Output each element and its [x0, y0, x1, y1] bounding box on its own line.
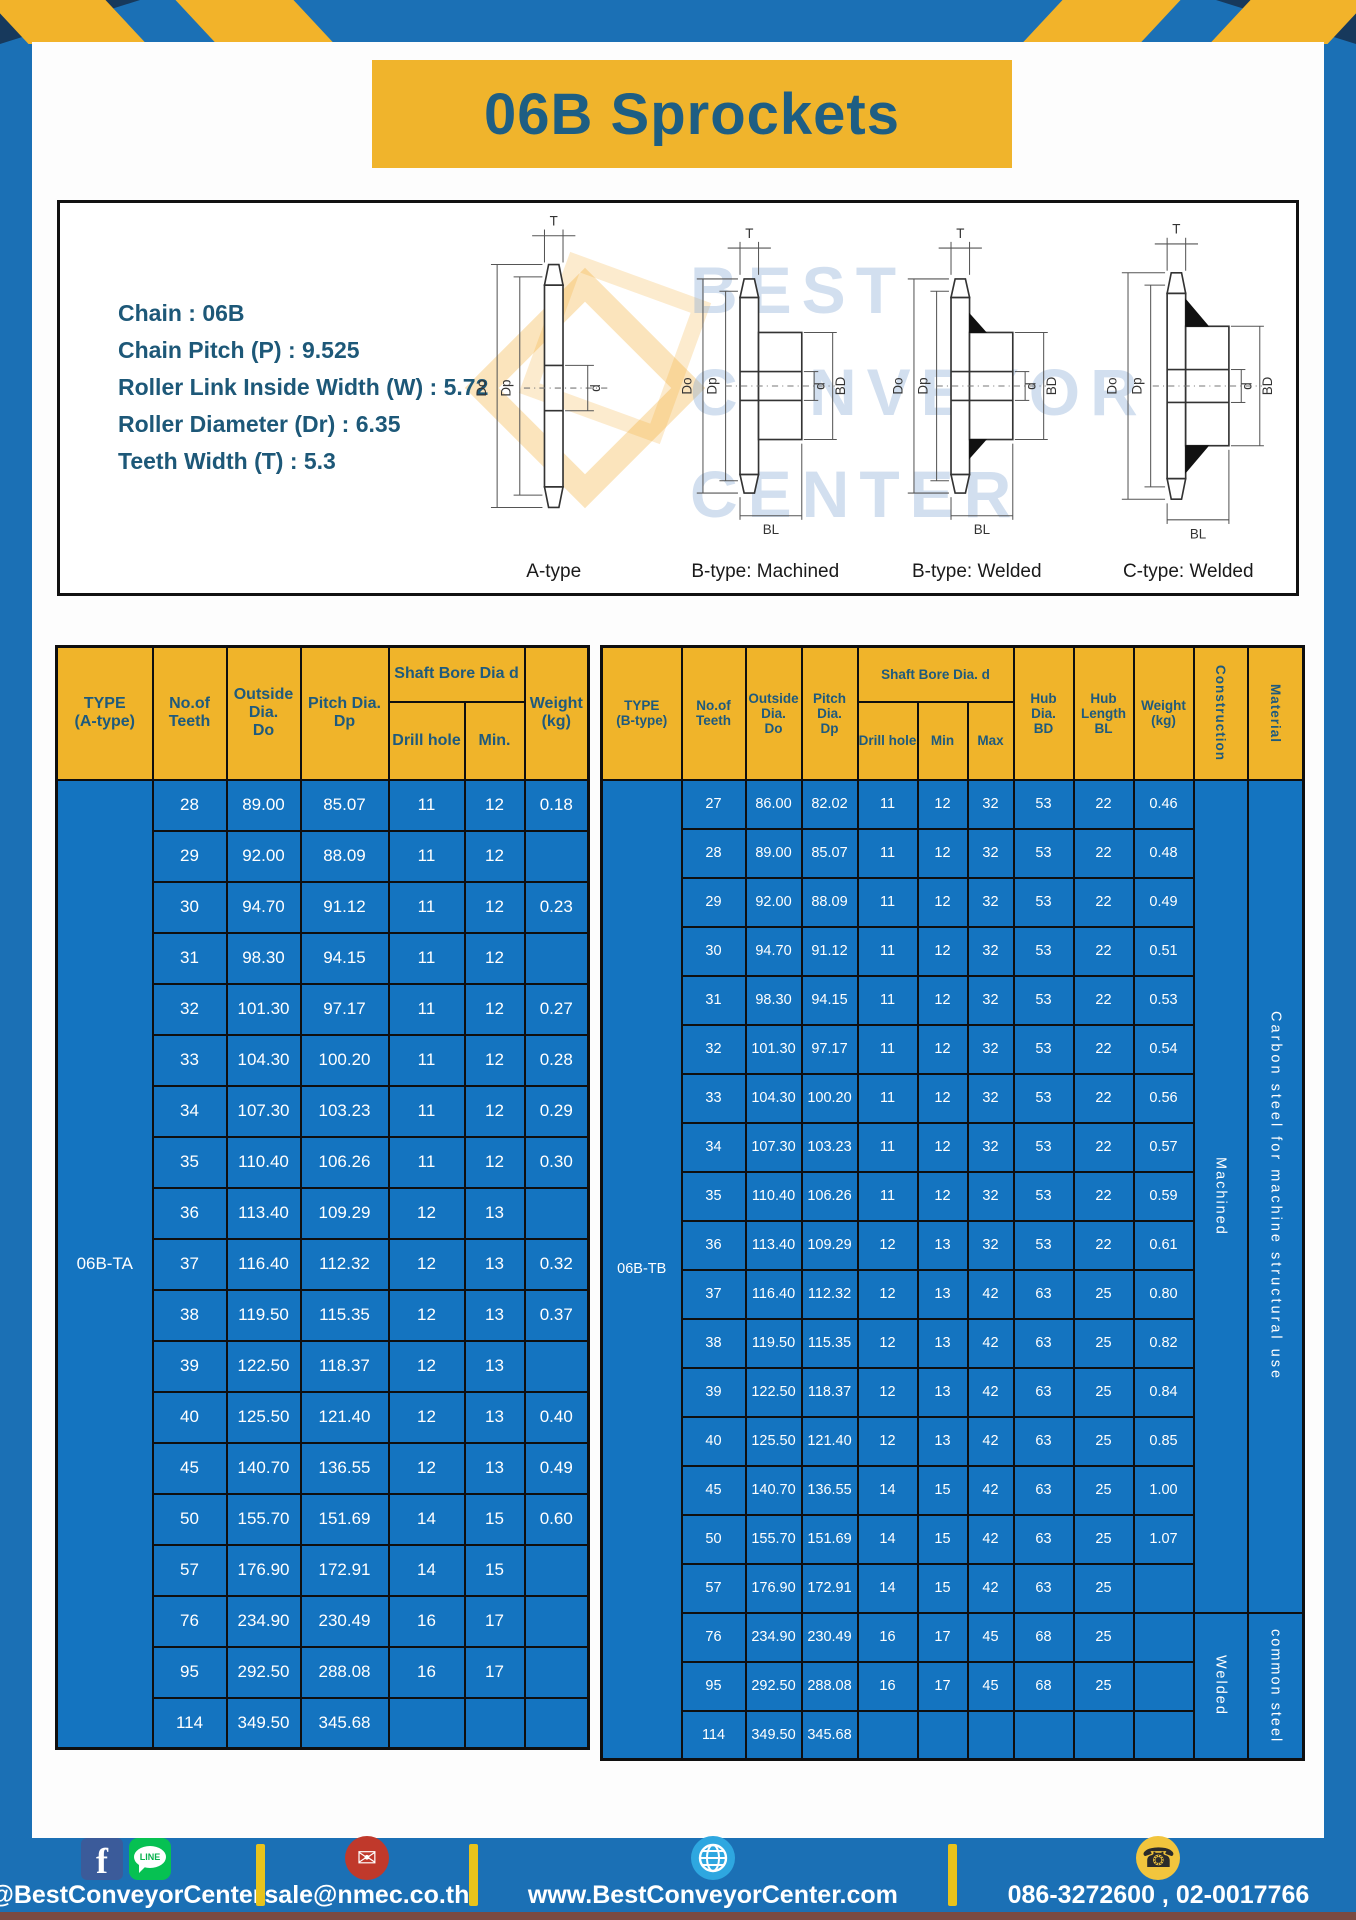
- dim-label-dp: Dp: [704, 377, 719, 394]
- col-header-shaft-bore: Shaft Bore Dia. d: [858, 647, 1014, 702]
- b-type-machined-cross-section: T Do Dp d BD BL: [660, 211, 872, 561]
- table-b-data-cell: 140.70: [746, 1466, 802, 1515]
- table-b-data-cell: 68: [1014, 1662, 1074, 1711]
- yellow-stripe: [175, 0, 334, 44]
- table-b-data-cell: 0.49: [1134, 878, 1194, 927]
- dim-label-do: Do: [474, 380, 489, 397]
- table-b-data-cell: 25: [1074, 1564, 1134, 1613]
- table-b-data-cell: 292.50: [746, 1662, 802, 1711]
- table-b-data-cell: 100.20: [802, 1074, 858, 1123]
- table-b-data-cell: 11: [858, 1025, 918, 1074]
- table-a-data-cell: 101.30: [227, 984, 301, 1035]
- chain-specs: Chain : 06B Chain Pitch (P) : 9.525 Roll…: [118, 295, 488, 480]
- table-a-data-cell: 13: [465, 1188, 525, 1239]
- table-b-data-cell: 94.15: [802, 976, 858, 1025]
- table-b-data-cell: 89.00: [746, 829, 802, 878]
- table-b-data-cell: 32: [968, 1074, 1014, 1123]
- table-b-data-cell: 234.90: [746, 1613, 802, 1662]
- table-b-data-cell: 91.12: [802, 927, 858, 976]
- table-b-data-cell: 39: [682, 1368, 746, 1417]
- yellow-stripe: [1021, 0, 1180, 44]
- table-a-data-cell: 113.40: [227, 1188, 301, 1239]
- table-b-data-cell: 22: [1074, 976, 1134, 1025]
- table-b-data-cell: 22: [1074, 878, 1134, 927]
- col-header-type: TYPE (B-type): [602, 647, 682, 780]
- table-a-data-cell: 345.68: [301, 1698, 389, 1749]
- table-b-data-cell: 109.29: [802, 1221, 858, 1270]
- table-b-data-cell: 114: [682, 1711, 746, 1760]
- table-a-data-cell: 38: [153, 1290, 227, 1341]
- table-a-data-cell: 119.50: [227, 1290, 301, 1341]
- table-b-data-cell: 11: [858, 1172, 918, 1221]
- table-b-data-cell: 14: [858, 1515, 918, 1564]
- table-b-data-cell: 12: [918, 1123, 968, 1172]
- table-b-data-cell: [1134, 1564, 1194, 1613]
- table-b-data-cell: 63: [1014, 1270, 1074, 1319]
- table-b-data-cell: 32: [968, 976, 1014, 1025]
- table-a-data-cell: [525, 933, 589, 984]
- col-header-weight: Weight (kg): [525, 647, 589, 780]
- table-b-data-cell: 155.70: [746, 1515, 802, 1564]
- table-a-data-cell: 114: [153, 1698, 227, 1749]
- table-b-data-cell: 38: [682, 1319, 746, 1368]
- table-a-data-cell: 98.30: [227, 933, 301, 984]
- table-a-data-cell: [389, 1698, 465, 1749]
- col-header-teeth: No.of Teeth: [682, 647, 746, 780]
- col-header-material: Material: [1248, 647, 1304, 780]
- table-b-data-cell: 0.46: [1134, 780, 1194, 829]
- table-a-data-cell: 12: [465, 984, 525, 1035]
- col-header-shaft-bore: Shaft Bore Dia d: [389, 647, 525, 702]
- table-b-data-cell: 63: [1014, 1515, 1074, 1564]
- table-a-data-cell: 29: [153, 831, 227, 882]
- table-a-data-cell: 12: [465, 1035, 525, 1086]
- table-b-data-cell: 50: [682, 1515, 746, 1564]
- table-a-data-cell: [525, 1596, 589, 1647]
- table-a-data-cell: 76: [153, 1596, 227, 1647]
- col-header-type: TYPE (A-type): [57, 647, 153, 780]
- mail-icon: ✉: [345, 1836, 389, 1880]
- email-text: sale@nmec.co.th: [264, 1881, 469, 1910]
- table-b-data-cell: 53: [1014, 1074, 1074, 1123]
- table-a-data-cell: 0.60: [525, 1494, 589, 1545]
- table-a-data-cell: 125.50: [227, 1392, 301, 1443]
- line-app-icon: LINE: [129, 1838, 171, 1880]
- table-b-data-cell: 42: [968, 1564, 1014, 1613]
- table-b-data-cell: 42: [968, 1466, 1014, 1515]
- dim-label-d: d: [812, 382, 827, 389]
- table-a-data-cell: 0.32: [525, 1239, 589, 1290]
- table-a-data-cell: 106.26: [301, 1137, 389, 1188]
- dim-label-d: d: [588, 384, 603, 391]
- table-b-data-cell: 113.40: [746, 1221, 802, 1270]
- table-a-data-cell: 14: [389, 1494, 465, 1545]
- table-b-data-cell: 53: [1014, 1221, 1074, 1270]
- table-a-data-cell: 97.17: [301, 984, 389, 1035]
- table-b-data-cell: [1074, 1711, 1134, 1760]
- table-a-data-cell: 12: [465, 780, 525, 831]
- table-b-data-cell: 68: [1014, 1613, 1074, 1662]
- drawing-label-c-welded: C-type: Welded: [1123, 561, 1254, 589]
- table-b-data-cell: 92.00: [746, 878, 802, 927]
- table-b-data-cell: 22: [1074, 780, 1134, 829]
- table-b-construction-cell: Welded: [1194, 1613, 1248, 1760]
- a-type-spec-table: TYPE (A-type) No.of Teeth Outside Dia. D…: [55, 645, 590, 1750]
- table-b-data-cell: 112.32: [802, 1270, 858, 1319]
- top-left-stripes: [0, 0, 430, 44]
- bottom-edge-strip: [0, 1912, 1356, 1920]
- table-b-data-cell: 13: [918, 1319, 968, 1368]
- table-a-data-cell: 28: [153, 780, 227, 831]
- table-a-data-cell: 12: [465, 1086, 525, 1137]
- dim-label-bd: BD: [1260, 376, 1275, 395]
- table-b-data-cell: 25: [1074, 1417, 1134, 1466]
- table-b-data-cell: 110.40: [746, 1172, 802, 1221]
- table-b-data-cell: 22: [1074, 927, 1134, 976]
- table-b-data-cell: 53: [1014, 927, 1074, 976]
- col-header-outside-dia: Outside Dia. Do: [227, 647, 301, 780]
- facebook-icon: f: [81, 1838, 123, 1880]
- table-a-data-cell: 32: [153, 984, 227, 1035]
- table-b-data-cell: [1014, 1711, 1074, 1760]
- table-b-data-cell: 42: [968, 1417, 1014, 1466]
- table-b-data-cell: 13: [918, 1221, 968, 1270]
- table-a-data-cell: 89.00: [227, 780, 301, 831]
- table-a-data-cell: 13: [465, 1341, 525, 1392]
- table-a-data-cell: 110.40: [227, 1137, 301, 1188]
- col-header-hub-dia: Hub Dia. BD: [1014, 647, 1074, 780]
- table-b-data-cell: 1.00: [1134, 1466, 1194, 1515]
- table-a-data-cell: 100.20: [301, 1035, 389, 1086]
- table-a-data-cell: 33: [153, 1035, 227, 1086]
- table-b-data-cell: 32: [968, 1123, 1014, 1172]
- table-b-data-cell: 63: [1014, 1564, 1074, 1613]
- table-a-data-cell: 112.32: [301, 1239, 389, 1290]
- col-header-max: Max: [968, 702, 1014, 780]
- table-b-data-cell: 0.51: [1134, 927, 1194, 976]
- table-a-data-cell: 45: [153, 1443, 227, 1494]
- table-b-data-cell: 25: [1074, 1466, 1134, 1515]
- table-a-data-cell: [525, 1188, 589, 1239]
- table-a-data-cell: 0.28: [525, 1035, 589, 1086]
- dim-label-do: Do: [891, 377, 906, 394]
- dim-label-d: d: [1023, 382, 1038, 389]
- table-a-data-cell: 14: [389, 1545, 465, 1596]
- table-b-data-cell: 0.84: [1134, 1368, 1194, 1417]
- table-b-row: 76234.90230.491617456825Weldedcommon ste…: [602, 1613, 1304, 1662]
- table-b-data-cell: 116.40: [746, 1270, 802, 1319]
- table-a-data-cell: 92.00: [227, 831, 301, 882]
- table-a-data-cell: 0.18: [525, 780, 589, 831]
- table-a-data-cell: [465, 1698, 525, 1749]
- table-a-data-cell: 12: [389, 1341, 465, 1392]
- col-header-weight: Weight (kg): [1134, 647, 1194, 780]
- table-a-data-cell: 116.40: [227, 1239, 301, 1290]
- footer-phone-section: ☎ 086-3272600 , 02-0017766: [961, 1838, 1356, 1912]
- table-b-data-cell: 12: [858, 1270, 918, 1319]
- table-b-data-cell: 22: [1074, 1172, 1134, 1221]
- table-b-data-cell: 136.55: [802, 1466, 858, 1515]
- table-a-data-cell: 292.50: [227, 1647, 301, 1698]
- table-a-data-cell: [525, 1647, 589, 1698]
- yellow-stripe: [1209, 0, 1356, 44]
- table-b-data-cell: 82.02: [802, 780, 858, 829]
- table-b-data-cell: 151.69: [802, 1515, 858, 1564]
- catalog-page: { "title_banner": { "text": "06B Sprocke…: [0, 0, 1356, 1920]
- phone-numbers-text: 086-3272600 , 02-0017766: [1008, 1881, 1310, 1910]
- table-b-data-cell: 22: [1074, 1074, 1134, 1123]
- table-b-type-cell: 06B-TB: [602, 780, 682, 1760]
- table-b-data-cell: [918, 1711, 968, 1760]
- drawing-a-type: T Do Dp d A-type: [448, 211, 660, 589]
- table-b-data-cell: 32: [968, 780, 1014, 829]
- table-b-data-cell: 12: [858, 1221, 918, 1270]
- table-b-data-cell: 32: [968, 927, 1014, 976]
- dim-label-t: T: [956, 226, 964, 241]
- table-a-data-cell: 35: [153, 1137, 227, 1188]
- dim-label-d: d: [1239, 382, 1254, 389]
- table-b-data-cell: 53: [1014, 878, 1074, 927]
- table-a-data-cell: 17: [465, 1596, 525, 1647]
- contact-footer: f LINE @BestConveyorCenter ✉ sale@nmec.c…: [0, 1838, 1356, 1912]
- table-b-data-cell: 12: [918, 1025, 968, 1074]
- footer-divider: [469, 1844, 478, 1906]
- table-b-data-cell: 42: [968, 1270, 1014, 1319]
- table-b-data-cell: 17: [918, 1613, 968, 1662]
- table-b-material-cell: common steel: [1248, 1613, 1304, 1760]
- table-a-data-cell: 140.70: [227, 1443, 301, 1494]
- table-b-data-cell: 12: [918, 829, 968, 878]
- top-right-stripes: [926, 0, 1356, 44]
- table-a-data-cell: 11: [389, 984, 465, 1035]
- dim-label-do: Do: [679, 377, 694, 394]
- table-a-data-cell: 0.27: [525, 984, 589, 1035]
- table-b-data-cell: 11: [858, 1074, 918, 1123]
- table-b-data-cell: 63: [1014, 1319, 1074, 1368]
- table-a-data-cell: 11: [389, 1035, 465, 1086]
- drawing-b-type-machined: T Do Dp d BD BL: [660, 211, 872, 589]
- spec-line-chain: Chain : 06B: [118, 295, 488, 332]
- table-b-data-cell: 230.49: [802, 1613, 858, 1662]
- table-a-data-cell: 34: [153, 1086, 227, 1137]
- table-a-data-cell: 13: [465, 1290, 525, 1341]
- table-b-data-cell: 15: [918, 1564, 968, 1613]
- table-b-data-cell: [1134, 1613, 1194, 1662]
- table-a-data-cell: 0.40: [525, 1392, 589, 1443]
- phone-icon: ☎: [1136, 1836, 1180, 1880]
- dim-label-t: T: [1172, 222, 1180, 237]
- table-a-data-cell: 39: [153, 1341, 227, 1392]
- table-b-data-cell: 22: [1074, 829, 1134, 878]
- table-b-data-cell: 0.56: [1134, 1074, 1194, 1123]
- table-b-data-cell: 63: [1014, 1417, 1074, 1466]
- table-b-data-cell: 0.82: [1134, 1319, 1194, 1368]
- table-b-data-cell: 32: [968, 1221, 1014, 1270]
- table-a-data-cell: 11: [389, 933, 465, 984]
- table-a-data-cell: 13: [465, 1392, 525, 1443]
- table-a-data-cell: 13: [465, 1239, 525, 1290]
- table-a-data-cell: 94.15: [301, 933, 389, 984]
- drawing-label-b-machined: B-type: Machined: [691, 561, 839, 589]
- table-b-data-cell: 119.50: [746, 1319, 802, 1368]
- table-a-data-cell: 230.49: [301, 1596, 389, 1647]
- drawing-label-b-welded: B-type: Welded: [912, 561, 1042, 589]
- table-a-data-cell: 16: [389, 1647, 465, 1698]
- footer-email-section: ✉ sale@nmec.co.th: [269, 1838, 465, 1912]
- table-a-data-cell: 288.08: [301, 1647, 389, 1698]
- table-b-data-cell: 16: [858, 1662, 918, 1711]
- table-a-row: 06B-TA2889.0085.0711120.18: [57, 780, 589, 831]
- table-b-data-cell: 0.80: [1134, 1270, 1194, 1319]
- table-a-data-cell: 234.90: [227, 1596, 301, 1647]
- table-b-data-cell: 32: [968, 878, 1014, 927]
- table-b-data-cell: 12: [918, 780, 968, 829]
- table-b-data-cell: 57: [682, 1564, 746, 1613]
- table-a-data-cell: 11: [389, 1086, 465, 1137]
- table-b-data-cell: 115.35: [802, 1319, 858, 1368]
- col-header-pitch-dia: Pitch Dia. Dp: [802, 647, 858, 780]
- table-b-data-cell: 14: [858, 1564, 918, 1613]
- table-a-data-cell: 107.30: [227, 1086, 301, 1137]
- table-b-data-cell: 32: [968, 1172, 1014, 1221]
- table-b-data-cell: 42: [968, 1319, 1014, 1368]
- footer-social-section: f LINE @BestConveyorCenter: [0, 1838, 252, 1912]
- b-type-spec-table: TYPE (B-type) No.of Teeth Outside Dia. D…: [600, 645, 1305, 1761]
- spec-line-pitch: Chain Pitch (P) : 9.525: [118, 332, 488, 369]
- table-a-data-cell: 0.29: [525, 1086, 589, 1137]
- table-a-data-cell: 31: [153, 933, 227, 984]
- footer-divider: [948, 1844, 957, 1906]
- col-header-min: Min.: [465, 702, 525, 780]
- table-b-data-cell: 11: [858, 976, 918, 1025]
- table-b-data-cell: 13: [918, 1417, 968, 1466]
- table-b-data-cell: 11: [858, 829, 918, 878]
- col-header-pitch-dia: Pitch Dia. Dp: [301, 647, 389, 780]
- table-b-data-cell: 53: [1014, 1172, 1074, 1221]
- table-b-data-cell: 25: [1074, 1515, 1134, 1564]
- table-a-data-cell: 12: [389, 1239, 465, 1290]
- table-b-data-cell: 40: [682, 1417, 746, 1466]
- dim-label-bd: BD: [833, 376, 848, 395]
- table-b-data-cell: 125.50: [746, 1417, 802, 1466]
- table-a-data-cell: 104.30: [227, 1035, 301, 1086]
- table-b-data-cell: 1.07: [1134, 1515, 1194, 1564]
- table-b-data-cell: 53: [1014, 780, 1074, 829]
- col-header-teeth: No.of Teeth: [153, 647, 227, 780]
- table-b-data-cell: 16: [858, 1613, 918, 1662]
- table-b-data-cell: 32: [968, 829, 1014, 878]
- table-b-data-cell: 85.07: [802, 829, 858, 878]
- drawing-label-a-type: A-type: [526, 561, 581, 589]
- table-a-data-cell: 91.12: [301, 882, 389, 933]
- table-b-data-cell: 11: [858, 927, 918, 976]
- col-header-drill-hole: Drill hole: [389, 702, 465, 780]
- table-a-data-cell: 15: [465, 1545, 525, 1596]
- table-a-data-cell: [525, 1545, 589, 1596]
- dim-label-t: T: [745, 226, 753, 241]
- table-b-material-cell: Carbon steel for machine structural use: [1248, 780, 1304, 1613]
- table-b-data-cell: 22: [1074, 1025, 1134, 1074]
- table-b-data-cell: 11: [858, 1123, 918, 1172]
- col-header-min: Min: [918, 702, 968, 780]
- table-b-data-cell: 288.08: [802, 1662, 858, 1711]
- table-b-data-cell: [1134, 1662, 1194, 1711]
- table-b-data-cell: 25: [1074, 1319, 1134, 1368]
- table-b-data-cell: 13: [918, 1368, 968, 1417]
- table-b-data-cell: 15: [918, 1515, 968, 1564]
- table-b-data-cell: 63: [1014, 1466, 1074, 1515]
- table-a-data-cell: 11: [389, 882, 465, 933]
- table-a-data-cell: 11: [389, 780, 465, 831]
- table-b-data-cell: 25: [1074, 1662, 1134, 1711]
- line-badge-text: LINE: [134, 1846, 166, 1868]
- table-b-data-cell: 25: [1074, 1368, 1134, 1417]
- table-a-data-cell: 155.70: [227, 1494, 301, 1545]
- table-a-data-cell: 88.09: [301, 831, 389, 882]
- table-b-data-cell: [968, 1711, 1014, 1760]
- table-b-data-cell: 0.53: [1134, 976, 1194, 1025]
- table-b-data-cell: 176.90: [746, 1564, 802, 1613]
- table-a-data-cell: 57: [153, 1545, 227, 1596]
- dim-label-t: T: [550, 213, 558, 228]
- table-a-data-cell: 12: [465, 1137, 525, 1188]
- table-a-data-cell: 40: [153, 1392, 227, 1443]
- page-title: 06B Sprockets: [484, 81, 900, 148]
- dim-label-dp: Dp: [915, 377, 930, 394]
- table-a-data-cell: 121.40: [301, 1392, 389, 1443]
- table-a-data-cell: [525, 831, 589, 882]
- dim-label-dp: Dp: [1129, 377, 1144, 394]
- table-b-data-cell: 94.70: [746, 927, 802, 976]
- table-b-data-cell: 31: [682, 976, 746, 1025]
- spec-diagram-panel: BEST CONVEYOR CENTER Chain : 06B Chain P…: [57, 200, 1299, 596]
- table-b-data-cell: 22: [1074, 1123, 1134, 1172]
- table-b-data-cell: 28: [682, 829, 746, 878]
- table-b-data-cell: 0.59: [1134, 1172, 1194, 1221]
- table-a-data-cell: 17: [465, 1647, 525, 1698]
- table-b-data-cell: 0.54: [1134, 1025, 1194, 1074]
- table-a-data-cell: [525, 1341, 589, 1392]
- c-type-welded-cross-section: T Do Dp d BD: [1083, 211, 1295, 561]
- table-b-data-cell: 35: [682, 1172, 746, 1221]
- table-b-data-cell: 13: [918, 1270, 968, 1319]
- table-b-data-cell: 103.23: [802, 1123, 858, 1172]
- col-header-construction: Construction: [1194, 647, 1248, 780]
- dim-label-do: Do: [1104, 377, 1119, 394]
- table-b-data-cell: 25: [1074, 1613, 1134, 1662]
- table-b-data-cell: 45: [682, 1466, 746, 1515]
- table-b-data-cell: 53: [1014, 1025, 1074, 1074]
- table-b-data-cell: 11: [858, 878, 918, 927]
- table-b-data-cell: 32: [968, 1025, 1014, 1074]
- table-a-data-cell: 30: [153, 882, 227, 933]
- table-a-data-cell: 15: [465, 1494, 525, 1545]
- table-b-data-cell: 88.09: [802, 878, 858, 927]
- table-a-data-cell: 172.91: [301, 1545, 389, 1596]
- a-type-cross-section: T Do Dp d: [448, 211, 660, 561]
- table-b-data-cell: 106.26: [802, 1172, 858, 1221]
- table-b-data-cell: 37: [682, 1270, 746, 1319]
- drawing-c-type-welded: T Do Dp d BD: [1083, 211, 1295, 589]
- spec-line-roller-dia: Roller Diameter (Dr) : 6.35: [118, 406, 488, 443]
- table-a-data-cell: 12: [465, 933, 525, 984]
- table-a-data-cell: 0.37: [525, 1290, 589, 1341]
- table-b-data-cell: 12: [858, 1319, 918, 1368]
- sprocket-drawings: T Do Dp d A-type: [448, 211, 1294, 589]
- table-a-data-cell: 0.30: [525, 1137, 589, 1188]
- table-a-data-cell: 16: [389, 1596, 465, 1647]
- table-a-data-cell: 12: [389, 1392, 465, 1443]
